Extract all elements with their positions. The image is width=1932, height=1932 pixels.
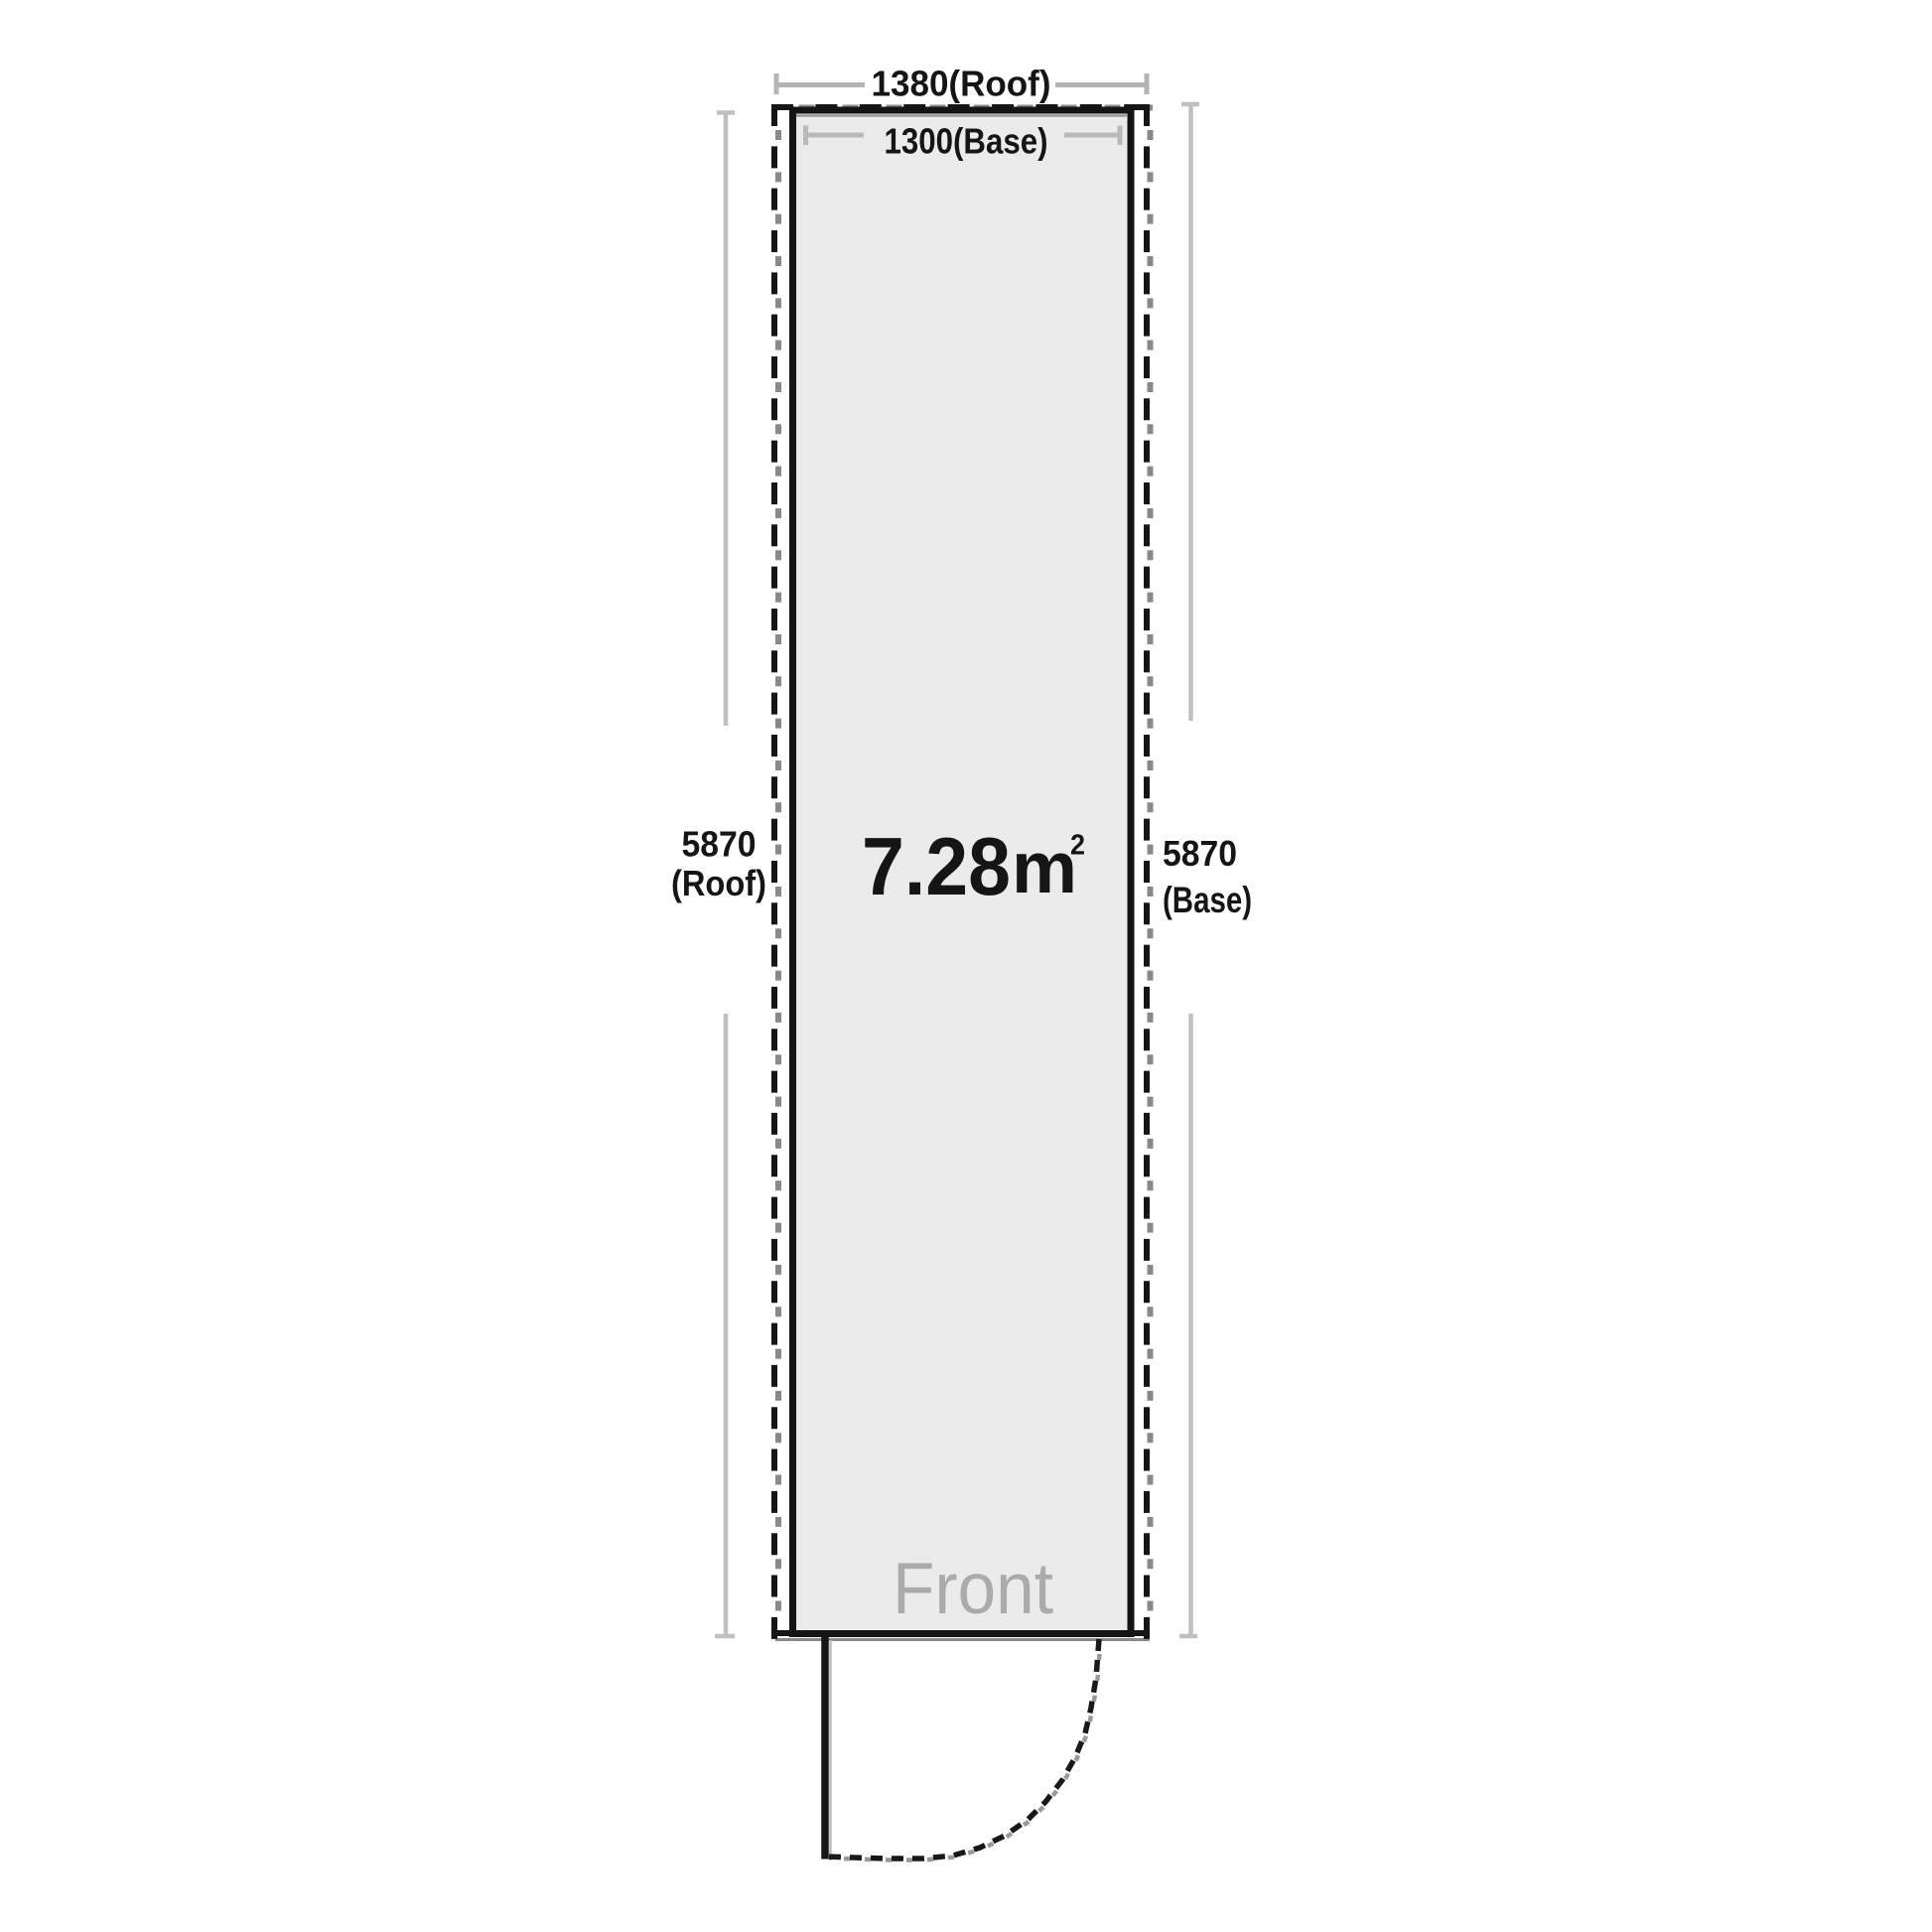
svg-text:5870: 5870 xyxy=(682,824,757,865)
svg-text:1300(Base): 1300(Base) xyxy=(885,121,1048,162)
svg-text:2: 2 xyxy=(1070,830,1085,862)
svg-text:7.28: 7.28 xyxy=(862,821,1011,912)
svg-text:Front: Front xyxy=(893,1549,1053,1629)
svg-text:1380(Roof): 1380(Roof) xyxy=(872,64,1051,104)
svg-text:(Base): (Base) xyxy=(1163,879,1252,920)
svg-text:(Roof): (Roof) xyxy=(671,863,766,903)
svg-text:5870: 5870 xyxy=(1163,833,1237,874)
svg-text:m: m xyxy=(1012,828,1077,908)
